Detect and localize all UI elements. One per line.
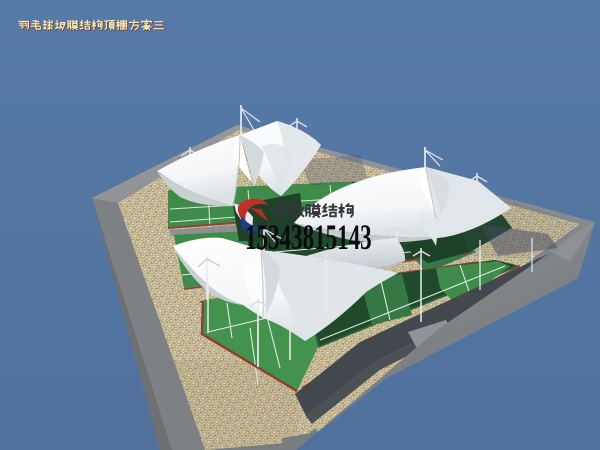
svg-text:15343815143: 15343815143: [245, 217, 372, 257]
